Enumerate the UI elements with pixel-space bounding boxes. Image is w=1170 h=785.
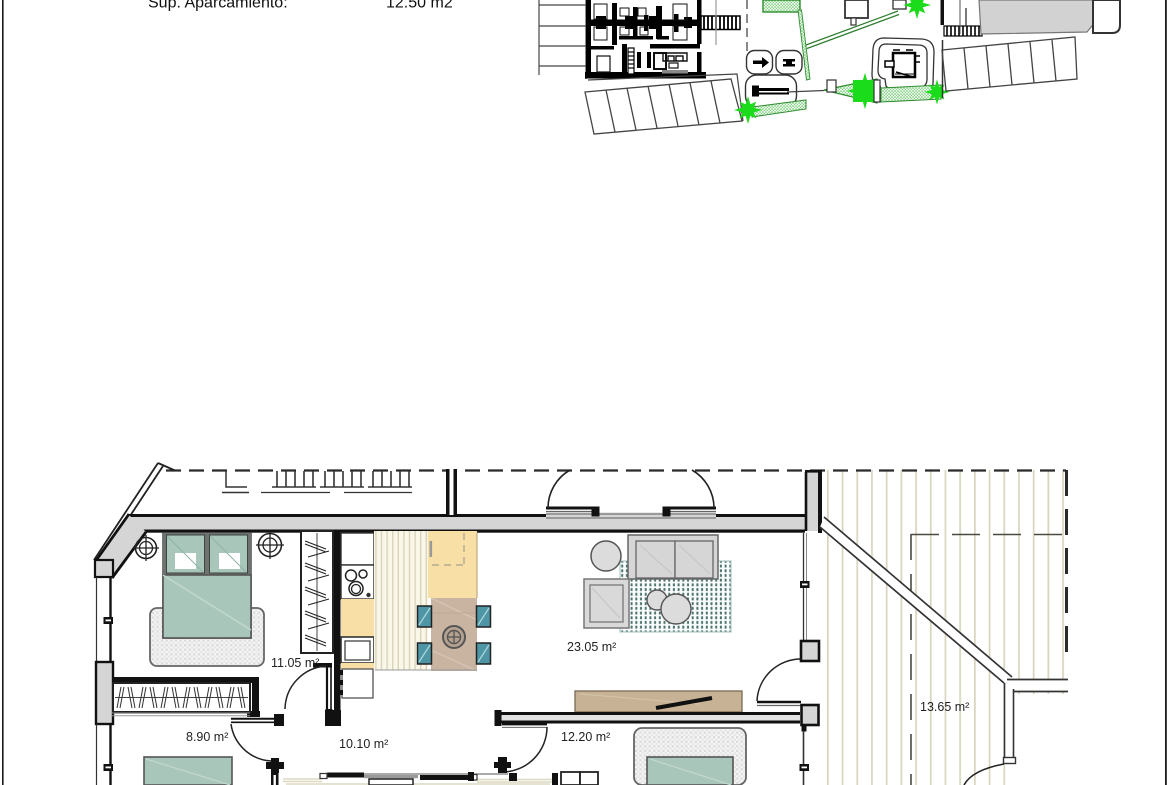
svg-text:12.50 m2: 12.50 m2 <box>386 0 453 12</box>
svg-text:23.05 m²: 23.05 m² <box>567 640 616 654</box>
svg-text:Sup. Aparcamiento:: Sup. Aparcamiento: <box>148 0 288 12</box>
svg-text:11.05 m²: 11.05 m² <box>271 656 319 670</box>
svg-text:13.65 m²: 13.65 m² <box>920 700 969 714</box>
svg-text:10.10 m²: 10.10 m² <box>339 737 388 751</box>
svg-text:12.20 m²: 12.20 m² <box>561 730 610 744</box>
svg-text:8.90 m²: 8.90 m² <box>186 730 228 744</box>
